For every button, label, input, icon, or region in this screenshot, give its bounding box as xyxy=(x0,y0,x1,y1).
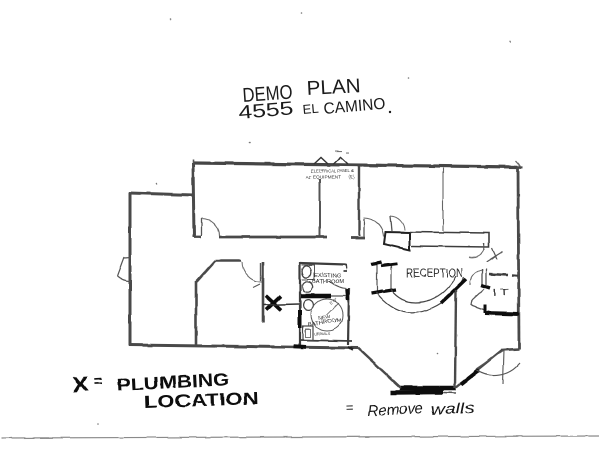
svg-text:AC EQUIPMENT: AC EQUIPMENT xyxy=(305,175,341,181)
svg-text:LOCATION: LOCATION xyxy=(143,388,259,412)
svg-text:walls: walls xyxy=(430,400,475,419)
svg-text:URINALS: URINALS xyxy=(314,332,330,336)
svg-text:Remove: Remove xyxy=(367,400,423,420)
svg-text:X: X xyxy=(72,373,90,397)
svg-text:BATHROOM: BATHROOM xyxy=(312,279,344,285)
svg-text:=: = xyxy=(346,400,354,415)
svg-text:EL: EL xyxy=(302,101,319,117)
svg-text:I T: I T xyxy=(493,287,510,299)
svg-text:PLAN: PLAN xyxy=(306,75,361,100)
svg-text:(E): (E) xyxy=(349,175,355,180)
svg-text:=: = xyxy=(93,373,103,390)
